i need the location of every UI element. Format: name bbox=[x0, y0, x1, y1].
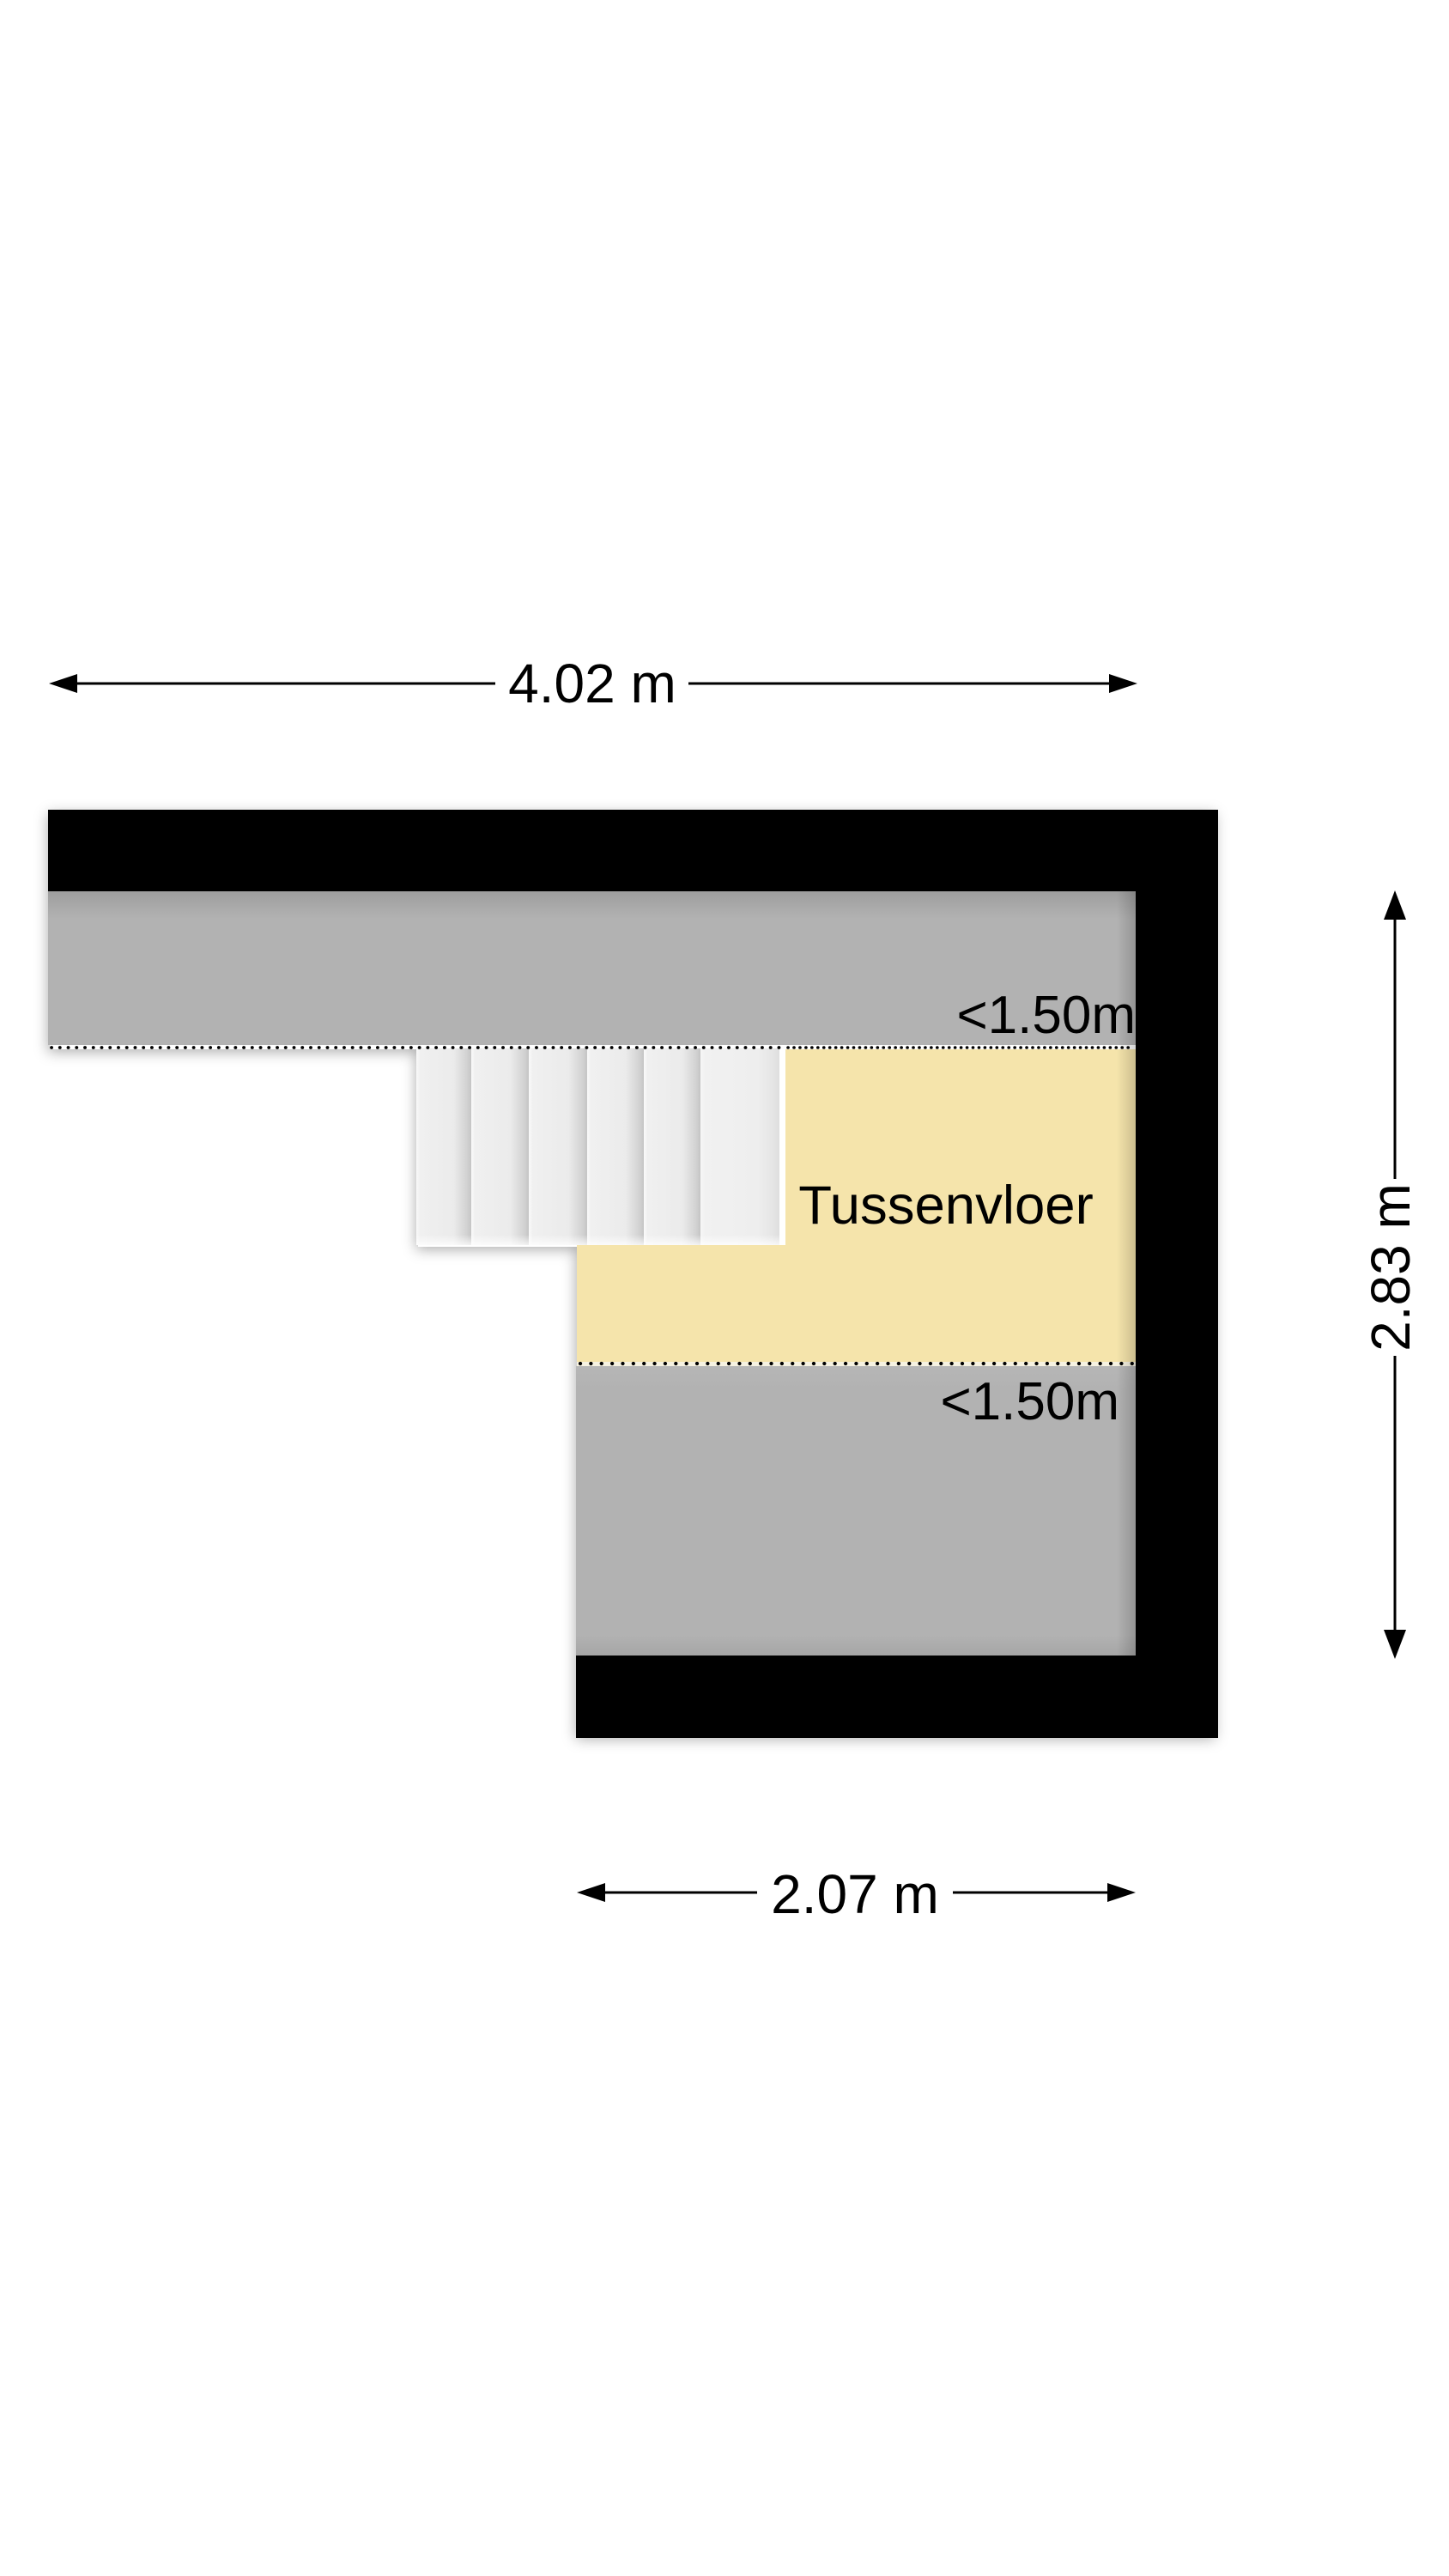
svg-text:4.02 m: 4.02 m bbox=[508, 653, 676, 714]
svg-text:2.83 m: 2.83 m bbox=[1360, 1183, 1422, 1352]
svg-text:Tussenvloer: Tussenvloer bbox=[798, 1176, 1094, 1236]
svg-text:2.07 m: 2.07 m bbox=[771, 1863, 939, 1925]
svg-text:<1.50m: <1.50m bbox=[940, 1372, 1119, 1431]
svg-text:<1.50m: <1.50m bbox=[956, 986, 1136, 1045]
